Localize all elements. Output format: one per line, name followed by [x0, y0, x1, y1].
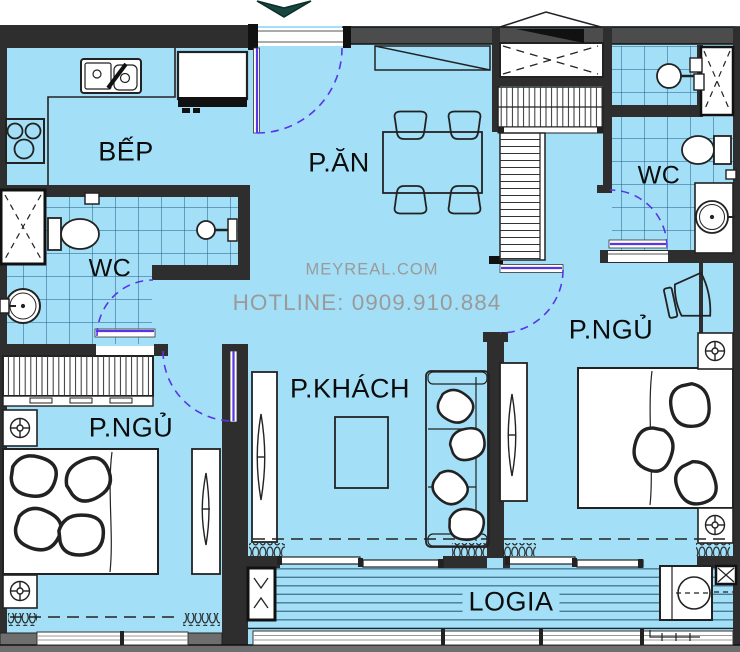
room-label-wc-right: WC — [638, 162, 681, 191]
room-label-wc-left: WC — [89, 255, 132, 284]
room-label-bedroom-right: P.NGỦ — [569, 315, 654, 346]
roof-line — [497, 12, 601, 28]
room-label-bedroom-left: P.NGỦ — [89, 413, 174, 444]
room-label-loggia: LOGIA — [462, 587, 559, 618]
toilet-icon — [48, 218, 61, 250]
washbasin-icon — [657, 64, 681, 88]
room-label-dining: P.ĂN — [308, 148, 370, 179]
faucet-icon — [197, 221, 215, 239]
watermark-site: MEYREAL.COM — [306, 261, 439, 280]
shaft-icon — [248, 568, 275, 620]
entrance-arrow-icon — [257, 1, 311, 17]
fridge-icon — [178, 52, 247, 99]
room-label-kitchen: BẾP — [98, 137, 154, 168]
floor-plan: BẾP P.ĂN WC WC P.NGỦ P.NGỦ P.KHÁCH LOGIA… — [0, 0, 740, 652]
floor-drain-icon — [716, 566, 736, 584]
watermark-hotline: HOTLINE: 0909.910.884 — [233, 290, 502, 316]
room-label-living: P.KHÁCH — [290, 374, 410, 405]
toilet-icon — [682, 136, 714, 164]
shower-icon — [701, 47, 733, 115]
